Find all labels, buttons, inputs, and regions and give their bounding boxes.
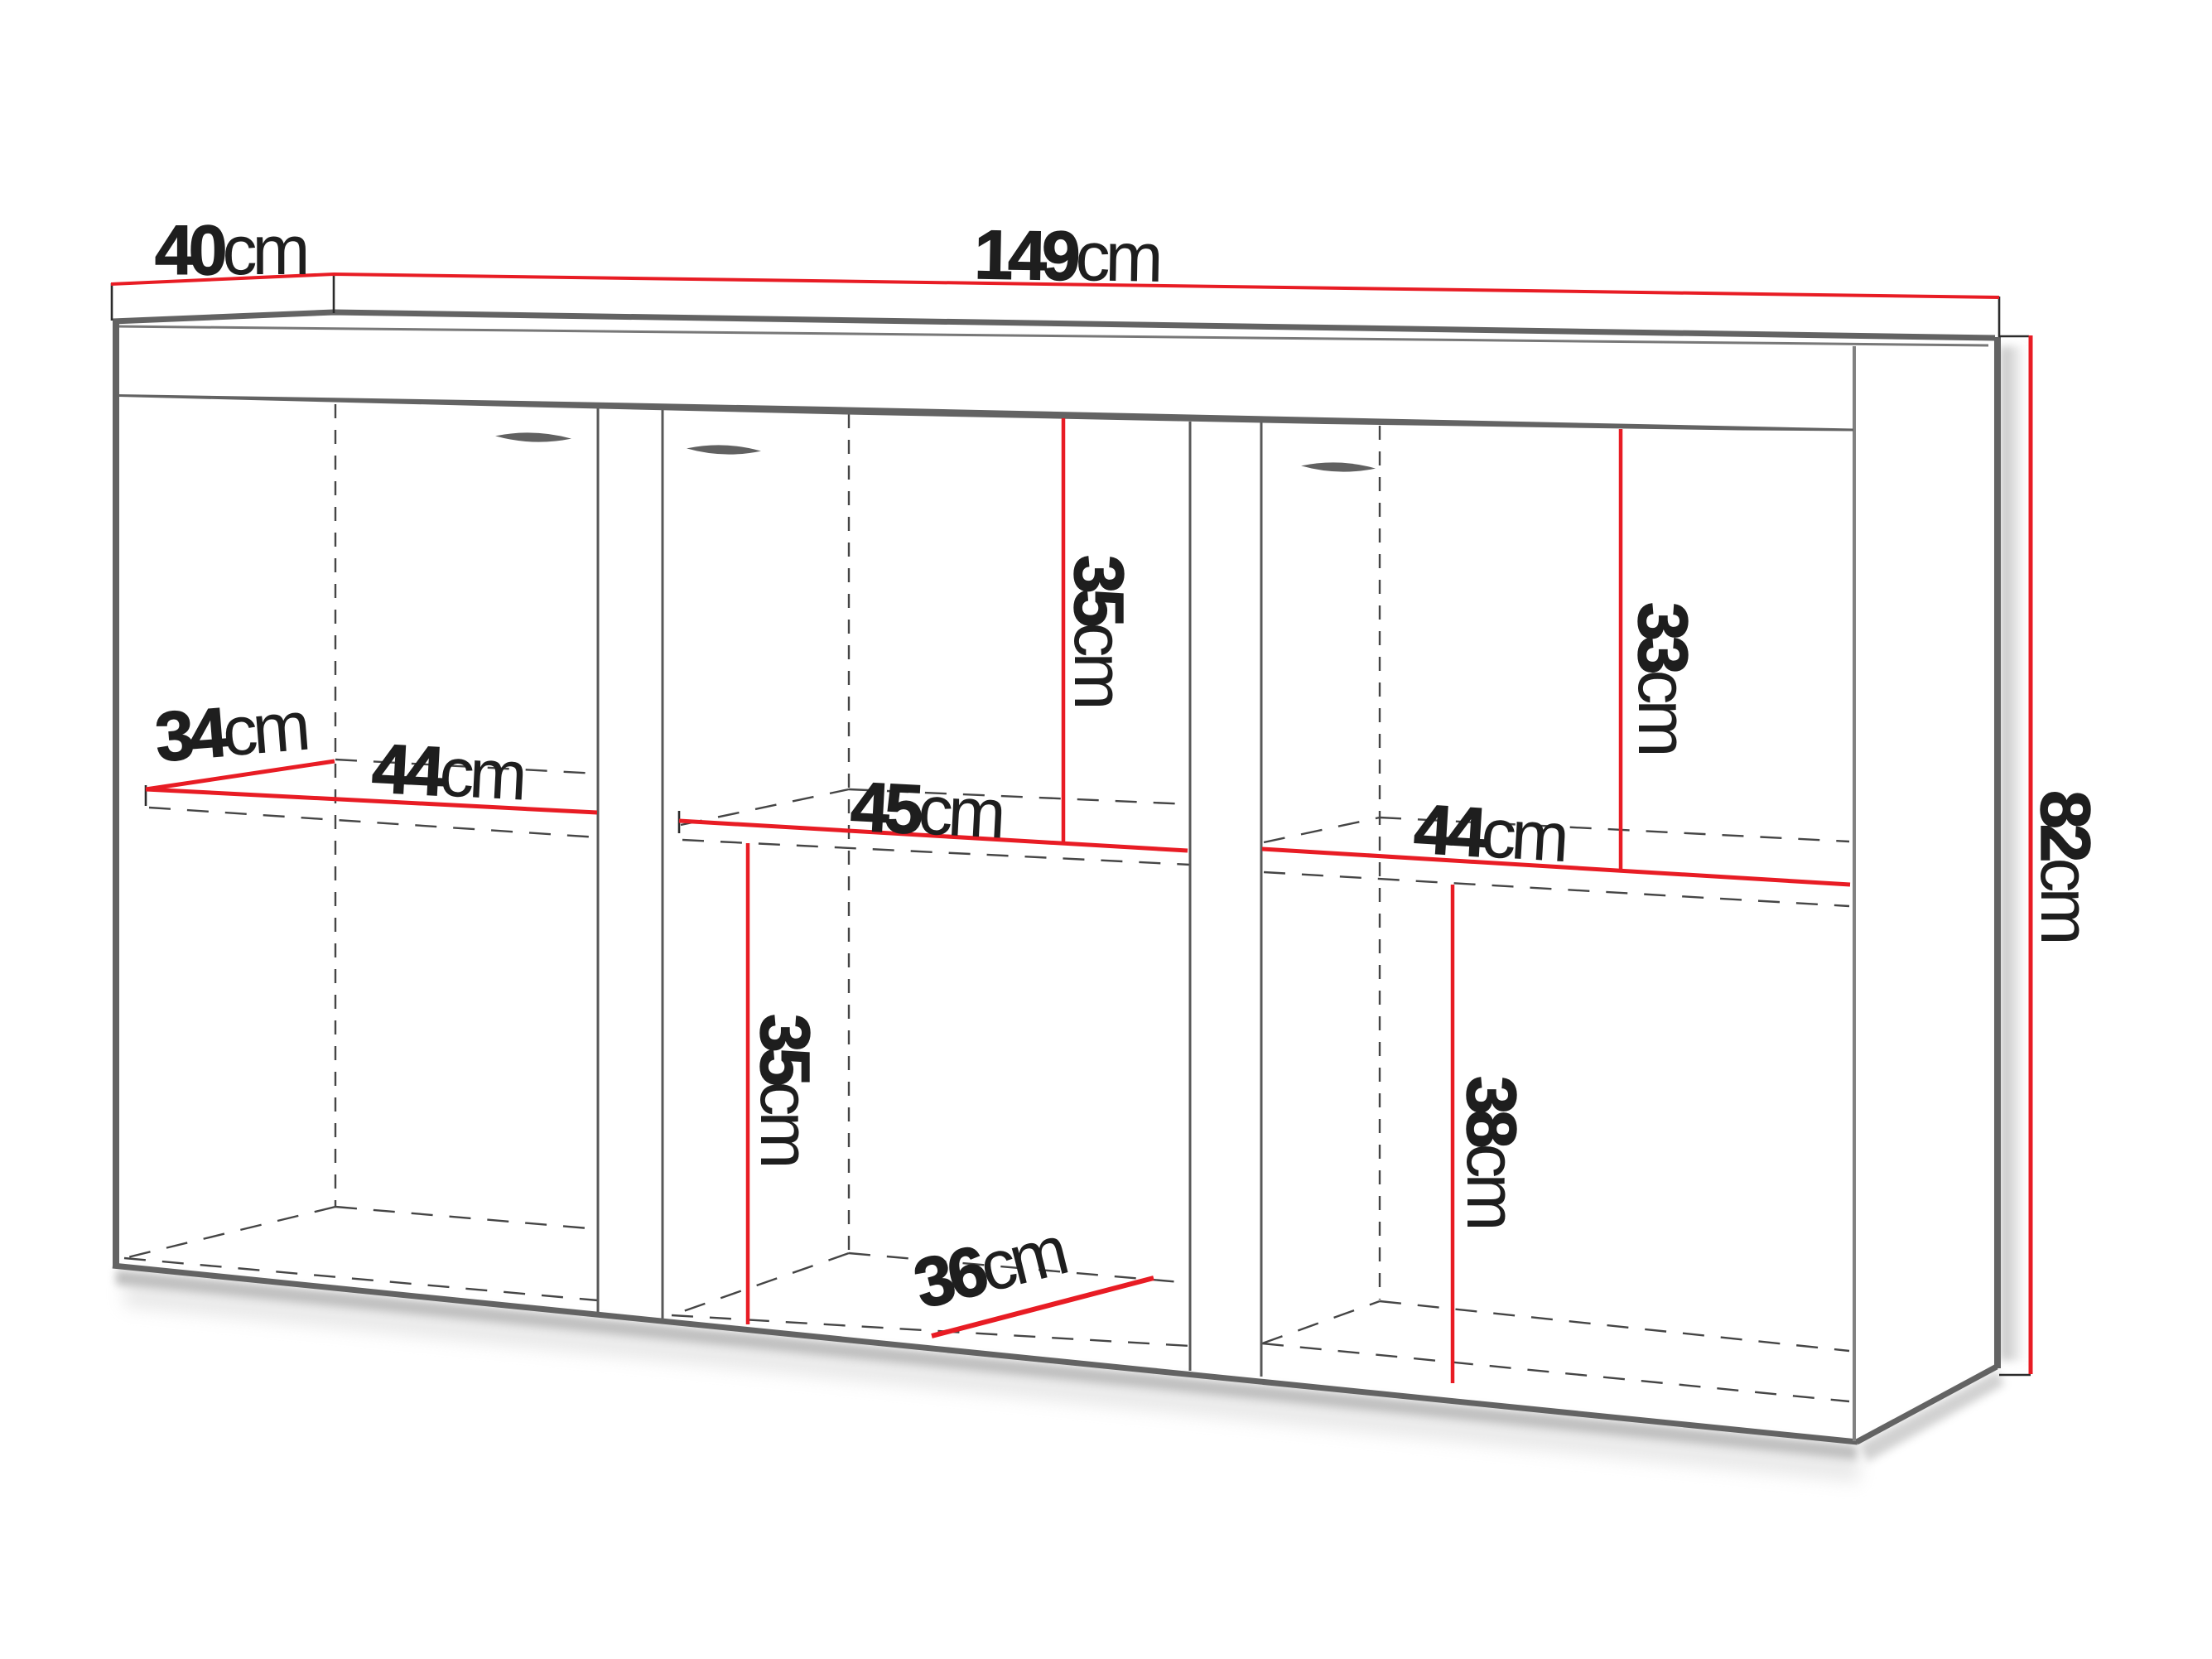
svg-text:38cm: 38cm: [1453, 1076, 1530, 1227]
svg-text:44cm: 44cm: [370, 729, 525, 814]
svg-text:82cm: 82cm: [2026, 790, 2104, 941]
svg-text:40cm: 40cm: [155, 211, 306, 289]
svg-text:35cm: 35cm: [746, 1014, 824, 1165]
svg-text:33cm: 33cm: [1624, 602, 1702, 753]
svg-text:45cm: 45cm: [849, 767, 1004, 852]
svg-text:149cm: 149cm: [974, 215, 1160, 297]
svg-text:44cm: 44cm: [1412, 789, 1568, 876]
svg-text:35cm: 35cm: [1060, 555, 1138, 706]
svg-text:34cm: 34cm: [152, 687, 309, 776]
